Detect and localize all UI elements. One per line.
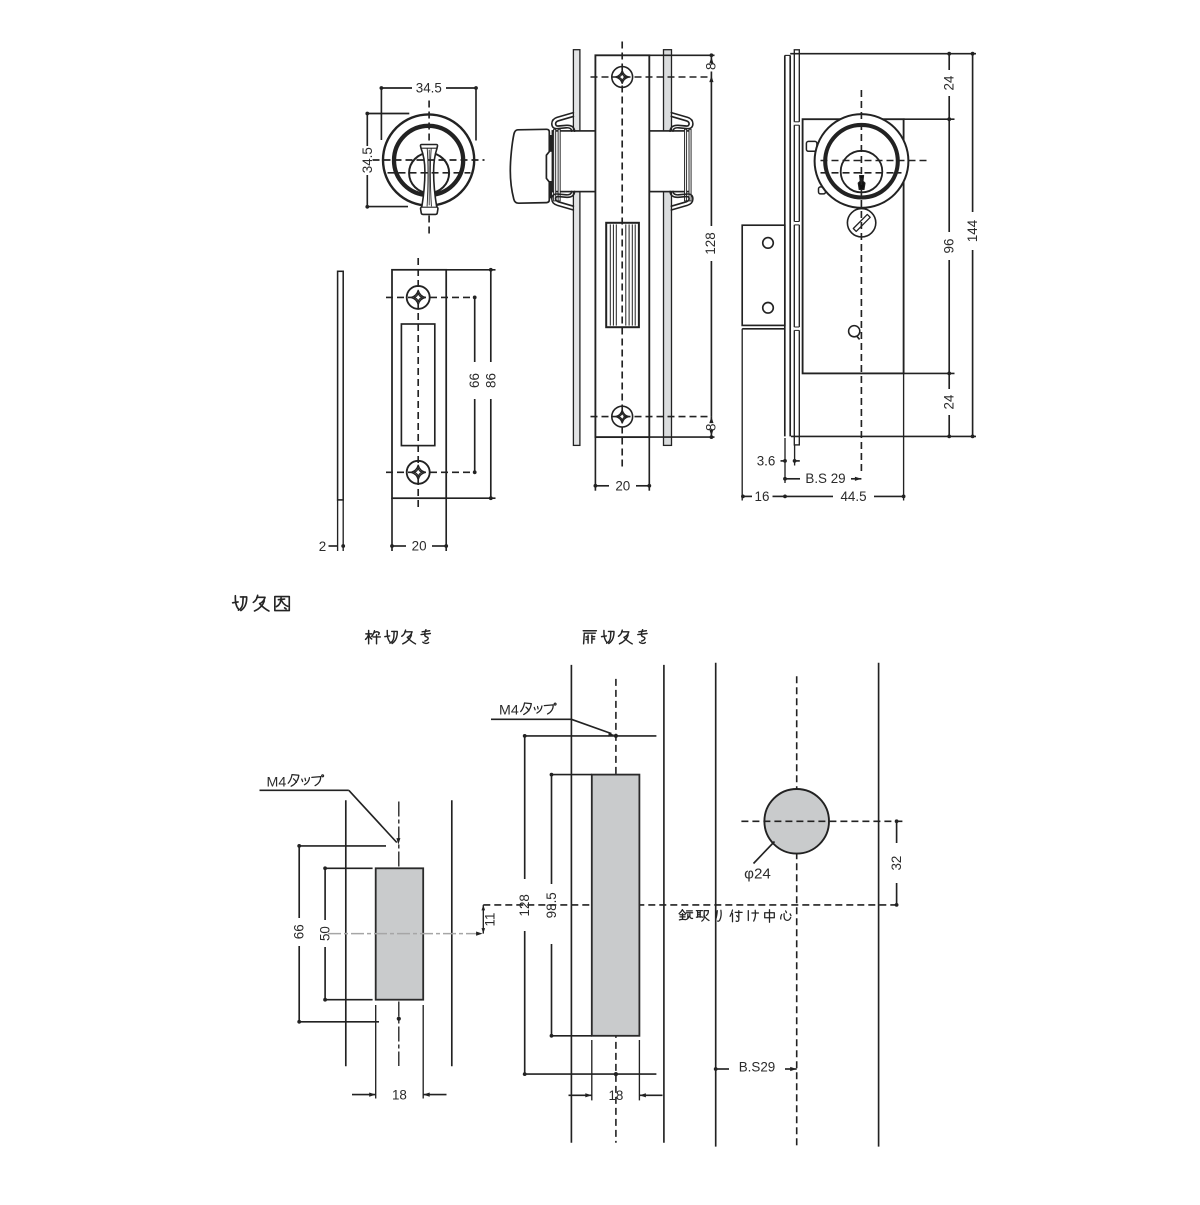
svg-text:2: 2 bbox=[319, 539, 326, 554]
svg-text:18: 18 bbox=[608, 1088, 623, 1103]
svg-text:11: 11 bbox=[482, 913, 497, 927]
svg-text:φ24: φ24 bbox=[744, 866, 771, 883]
svg-text:20: 20 bbox=[412, 539, 427, 554]
svg-text:98.5: 98.5 bbox=[544, 892, 559, 918]
svg-text:66: 66 bbox=[467, 373, 482, 388]
svg-text:128: 128 bbox=[517, 894, 532, 916]
svg-text:128: 128 bbox=[703, 232, 718, 254]
svg-text:24: 24 bbox=[942, 394, 957, 409]
svg-text:144: 144 bbox=[965, 219, 980, 242]
svg-text:16: 16 bbox=[755, 489, 770, 504]
svg-text:32: 32 bbox=[889, 856, 904, 871]
svg-text:8: 8 bbox=[704, 63, 719, 70]
svg-text:8: 8 bbox=[704, 424, 719, 431]
svg-text:86: 86 bbox=[483, 373, 498, 388]
svg-text:34.5: 34.5 bbox=[416, 81, 442, 96]
svg-text:M4: M4 bbox=[267, 774, 287, 790]
svg-text:B.S29: B.S29 bbox=[739, 1059, 775, 1074]
svg-text:96: 96 bbox=[942, 239, 957, 254]
svg-text:44.5: 44.5 bbox=[840, 489, 866, 504]
svg-text:20: 20 bbox=[615, 478, 630, 493]
svg-text:66: 66 bbox=[292, 924, 307, 939]
svg-text:18: 18 bbox=[392, 1087, 407, 1102]
svg-text:24: 24 bbox=[942, 75, 957, 90]
svg-text:M4: M4 bbox=[499, 703, 519, 719]
svg-text:3.6: 3.6 bbox=[757, 454, 776, 469]
svg-text:34.5: 34.5 bbox=[360, 147, 375, 173]
svg-text:B.S 29: B.S 29 bbox=[805, 471, 845, 486]
